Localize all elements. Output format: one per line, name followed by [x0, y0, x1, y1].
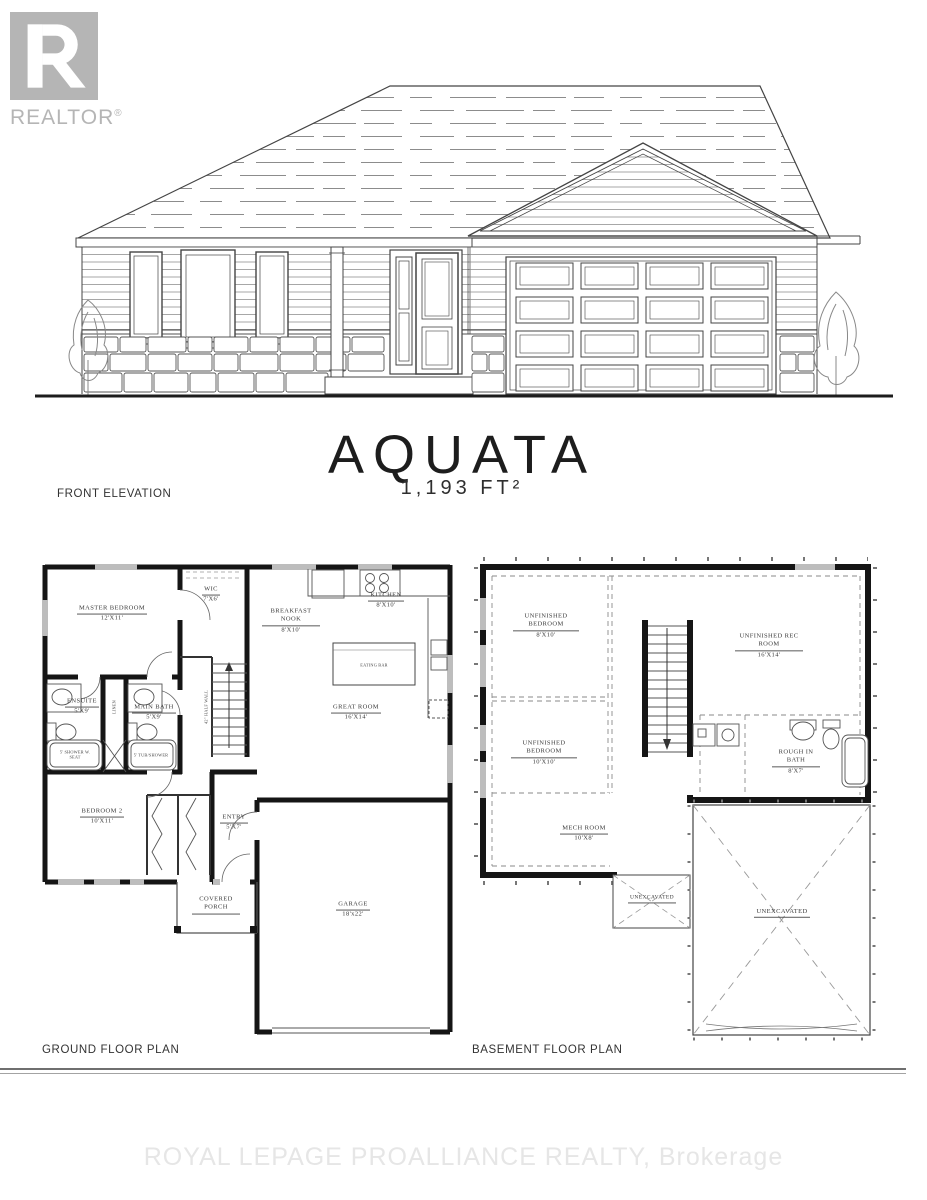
ground-floor-plan-drawing [42, 564, 453, 1034]
tub-label: 5' TUB/SHOWER [129, 752, 173, 757]
basement-floor-plan-label: BASEMENT FLOOR PLAN [472, 1044, 623, 1056]
realtor-logo-icon [10, 8, 98, 104]
room-label-bedroom-2: BEDROOM 210'X11' [66, 808, 138, 827]
room-label-breakfast-nook: BREAKFAST NOOK8'X10' [262, 607, 320, 634]
eating-bar-label: EATING BAR [349, 662, 399, 667]
room-label-wic: WIC7'X6' [191, 586, 231, 605]
realtor-logo-text: REALTOR® [10, 106, 120, 130]
room-label-mech-room: MECH ROOM10'X8' [547, 825, 621, 844]
front-elevation-label: FRONT ELEVATION [57, 488, 171, 500]
tree-right [814, 292, 859, 396]
front-elevation-drawing [35, 86, 893, 396]
room-label-ensuite: ENSUITE5'X9' [59, 698, 105, 717]
floor-plan-sheet: REALTOR® AQUATA 1,193 FT² FRONT ELEVATIO… [0, 0, 927, 1200]
realtor-logo: REALTOR® [10, 8, 120, 130]
half-wall-label: 42" HALF WALL [204, 690, 209, 724]
linen-label: LINEN [112, 700, 117, 714]
room-label-rec-room: UNFINISHED REC ROOM16'X14' [735, 632, 803, 659]
bottom-rule-thick [0, 1068, 906, 1070]
room-label-rough-in-bath: ROUGH IN BATH8'X7' [772, 748, 820, 775]
architectural-drawing [0, 0, 927, 1200]
room-label-great-room: GREAT ROOM16'X14' [319, 704, 393, 723]
room-label-kitchen: KITCHEN8'X10' [360, 592, 412, 611]
front-door [390, 250, 462, 374]
room-label-entry: ENTRY5'X7' [215, 814, 253, 833]
room-label-master-bedroom: MASTER BEDROOM12'X11' [72, 605, 152, 624]
porch-slab [325, 377, 473, 394]
room-label-unexcavated-large: UNEXCAVATED [742, 908, 822, 918]
brokerage-watermark: ROYAL LEPAGE PROALLIANCE REALTY, Brokera… [0, 1143, 927, 1172]
unexcavated-garage [689, 801, 874, 1039]
garage-door [506, 257, 776, 394]
shower-label: 5' SHOWER W. SEAT [55, 750, 95, 761]
room-label-unfinished-bedroom-1: UNFINISHED BEDROOM8'X10' [513, 612, 579, 639]
bottom-rule-thin [0, 1073, 906, 1074]
ground-floor-plan-label: GROUND FLOOR PLAN [42, 1044, 179, 1056]
porch-post [331, 247, 343, 377]
room-label-unfinished-bedroom-2: UNFINISHED BEDROOM10'X10' [511, 739, 577, 766]
room-label-unexcavated-small: UNEXCAVATED [617, 894, 687, 903]
plan-area: 1,193 FT² [232, 477, 692, 500]
room-label-main-bath: MAIN BATH5'X9' [128, 704, 180, 723]
room-label-covered-porch: COVERED PORCH [192, 896, 240, 915]
room-label-garage: GARAGE18'x22' [327, 901, 379, 920]
